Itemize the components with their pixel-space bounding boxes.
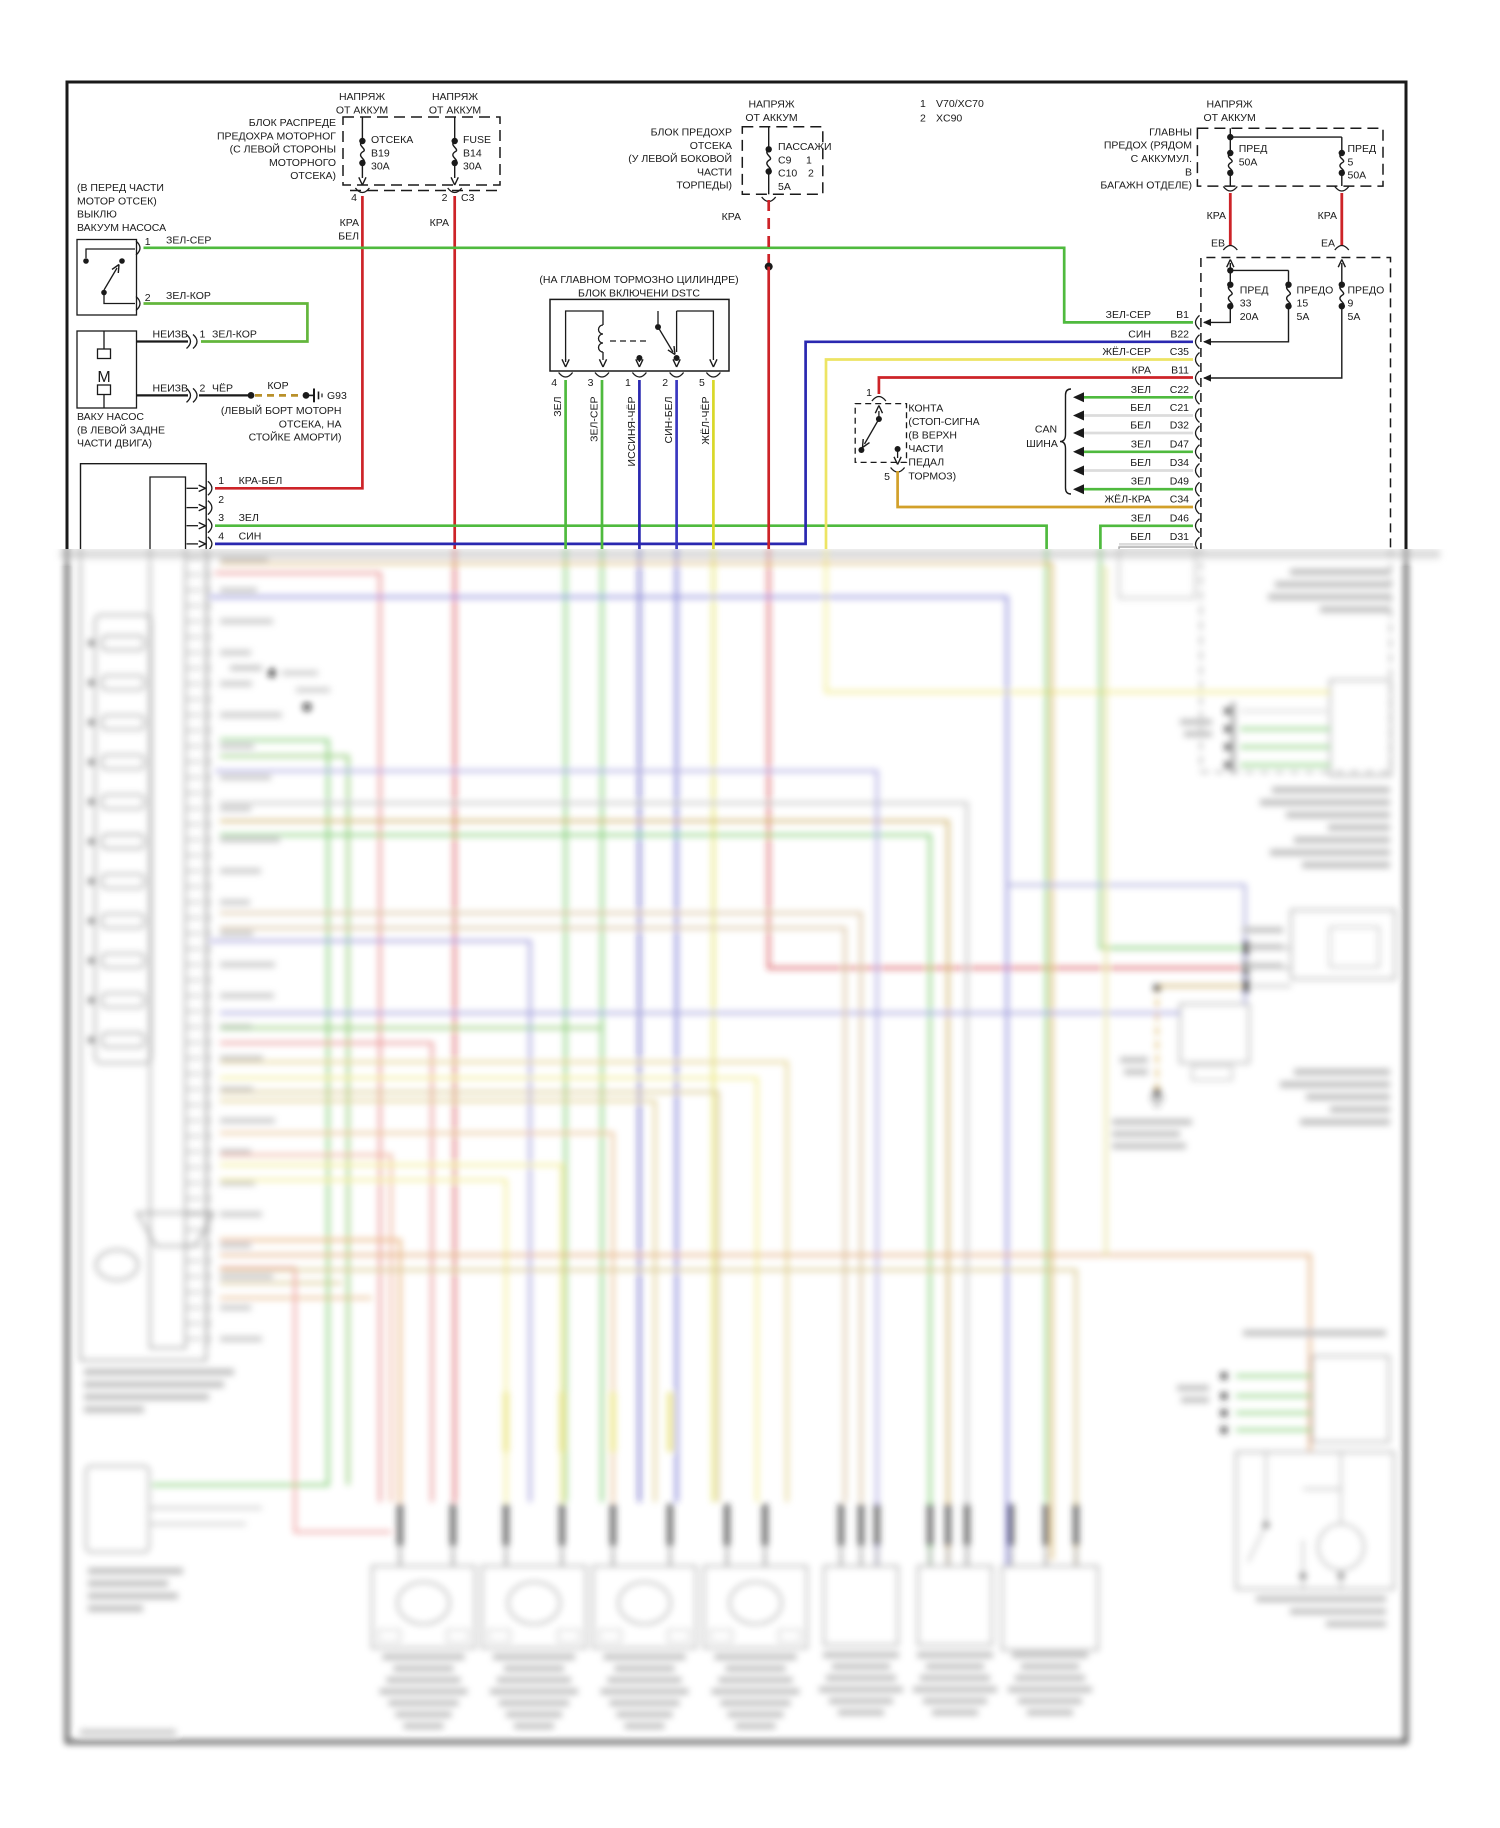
svg-text:ЧАСТИ: ЧАСТИ: [908, 443, 943, 455]
svg-text:БЕЛ: БЕЛ: [338, 230, 359, 242]
svg-text:ОТ АККУМ: ОТ АККУМ: [429, 104, 481, 116]
svg-text:ТОРМОЗ): ТОРМОЗ): [908, 470, 956, 482]
svg-text:CAN: CAN: [1035, 424, 1057, 436]
svg-text:КРА: КРА: [722, 211, 741, 223]
svg-text:В: В: [1185, 166, 1192, 178]
svg-text:ЧАСТИ ДВИГА): ЧАСТИ ДВИГА): [77, 438, 152, 450]
svg-text:C10: C10: [778, 168, 797, 180]
svg-text:ТОРПЕДЫ): ТОРПЕДЫ): [676, 180, 732, 192]
svg-text:ЗЕЛ: ЗЕЛ: [239, 512, 259, 524]
svg-text:30A: 30A: [371, 161, 390, 173]
svg-text:ИССИНЯ-ЧЁР: ИССИНЯ-ЧЁР: [626, 397, 638, 467]
svg-text:ЗЕЛ: ЗЕЛ: [1131, 438, 1151, 450]
svg-text:(В ПЕРЕД ЧАСТИ: (В ПЕРЕД ЧАСТИ: [77, 182, 164, 194]
svg-text:СТОЙКЕ АМОРТИ): СТОЙКЕ АМОРТИ): [249, 431, 342, 444]
svg-text:(С ЛЕВОЙ СТОРОНЫ: (С ЛЕВОЙ СТОРОНЫ: [230, 143, 336, 156]
svg-text:XC90: XC90: [936, 113, 962, 125]
svg-text:50A: 50A: [1348, 170, 1367, 182]
svg-text:EB: EB: [1211, 238, 1225, 250]
svg-text:2: 2: [920, 113, 926, 125]
svg-text:(В ЛЕВОЙ ЗАДНЕ: (В ЛЕВОЙ ЗАДНЕ: [77, 423, 165, 436]
svg-text:1: 1: [920, 98, 926, 110]
svg-text:ШИНА: ШИНА: [1026, 438, 1058, 450]
svg-text:ЗЕЛ-СЕР: ЗЕЛ-СЕР: [1106, 309, 1151, 321]
svg-text:2: 2: [200, 383, 206, 395]
svg-text:33: 33: [1240, 298, 1252, 310]
svg-text:5A: 5A: [1348, 311, 1361, 323]
svg-text:ЗЕЛ: ЗЕЛ: [1131, 512, 1151, 524]
svg-text:ПРЕДОХ (РЯДОМ: ПРЕДОХ (РЯДОМ: [1104, 140, 1192, 152]
svg-text:ЧЁР: ЧЁР: [212, 383, 233, 395]
svg-text:C22: C22: [1170, 384, 1189, 396]
svg-text:C9: C9: [778, 154, 792, 166]
svg-text:D49: D49: [1170, 476, 1189, 488]
svg-text:ПРЕДО: ПРЕДО: [1348, 284, 1385, 296]
svg-text:БАГАЖН ОТДЕЛЕ): БАГАЖН ОТДЕЛЕ): [1100, 180, 1192, 192]
svg-text:50A: 50A: [1239, 156, 1258, 168]
svg-text:ПРЕД: ПРЕД: [1239, 143, 1268, 155]
svg-text:(СТОП-СИГНА: (СТОП-СИГНА: [908, 416, 979, 428]
svg-text:ЗЕЛ-СЕР: ЗЕЛ-СЕР: [589, 397, 601, 442]
svg-text:D32: D32: [1170, 420, 1189, 432]
svg-text:EA: EA: [1321, 238, 1335, 250]
svg-text:4: 4: [218, 530, 224, 542]
svg-text:КРА: КРА: [1132, 365, 1151, 377]
svg-text:М: М: [97, 369, 110, 386]
svg-text:БЕЛ: БЕЛ: [1130, 531, 1151, 543]
svg-text:ПАССАЖИ: ПАССАЖИ: [778, 141, 832, 153]
svg-text:КОР: КОР: [267, 380, 288, 392]
svg-text:ПЕДАЛ: ПЕДАЛ: [908, 457, 944, 469]
svg-text:5: 5: [884, 471, 890, 483]
svg-text:ОТ АККУМ: ОТ АККУМ: [745, 112, 797, 124]
svg-text:C3: C3: [461, 192, 475, 204]
svg-text:НАПРЯЖ: НАПРЯЖ: [432, 91, 478, 103]
svg-text:30A: 30A: [463, 161, 482, 173]
svg-text:НЕИЗВ: НЕИЗВ: [153, 383, 188, 395]
svg-text:V70/XC70: V70/XC70: [936, 98, 984, 110]
svg-text:ЖЁЛ-КРА: ЖЁЛ-КРА: [1104, 494, 1151, 506]
svg-text:СИН: СИН: [1128, 328, 1151, 340]
svg-text:B22: B22: [1170, 328, 1189, 340]
svg-text:4: 4: [551, 377, 557, 389]
svg-text:D47: D47: [1170, 438, 1189, 450]
svg-text:D31: D31: [1170, 531, 1189, 543]
svg-text:C34: C34: [1170, 494, 1189, 506]
svg-text:ЧАСТИ: ЧАСТИ: [697, 166, 732, 178]
svg-text:3: 3: [218, 512, 224, 524]
svg-text:1: 1: [625, 377, 631, 389]
svg-text:МОТОР ОТСЕК): МОТОР ОТСЕК): [77, 195, 157, 207]
svg-text:(В ВЕРХН: (В ВЕРХН: [908, 430, 957, 442]
svg-text:5A: 5A: [778, 181, 791, 193]
svg-text:КРА: КРА: [430, 217, 449, 229]
svg-text:КРА: КРА: [340, 217, 359, 229]
svg-text:ОТ АККУМ: ОТ АККУМ: [336, 104, 388, 116]
svg-text:ОТСЕКА: ОТСЕКА: [690, 140, 732, 152]
svg-text:C21: C21: [1170, 402, 1189, 414]
svg-text:2: 2: [662, 377, 668, 389]
svg-text:D34: D34: [1170, 457, 1189, 469]
svg-text:(ЛЕВЫЙ БОРТ МОТОРН: (ЛЕВЫЙ БОРТ МОТОРН: [221, 404, 342, 417]
svg-text:9: 9: [1348, 298, 1354, 310]
svg-text:15: 15: [1297, 298, 1309, 310]
svg-text:20A: 20A: [1240, 311, 1259, 323]
svg-text:ОТСЕКА, НА: ОТСЕКА, НА: [279, 418, 342, 430]
svg-text:НЕИЗВ: НЕИЗВ: [153, 329, 188, 341]
svg-text:ЖЁЛ-СЕР: ЖЁЛ-СЕР: [1102, 346, 1151, 358]
svg-text:C35: C35: [1170, 346, 1189, 358]
svg-text:КРА: КРА: [1318, 210, 1337, 222]
svg-text:КРА-БЕЛ: КРА-БЕЛ: [239, 475, 283, 487]
svg-text:FUSE: FUSE: [463, 134, 491, 146]
svg-text:БЕЛ: БЕЛ: [1130, 402, 1151, 414]
svg-text:ОТ АККУМ: ОТ АККУМ: [1203, 112, 1255, 124]
svg-text:2: 2: [442, 192, 448, 204]
svg-text:B11: B11: [1171, 365, 1189, 377]
svg-text:ЗЕЛ: ЗЕЛ: [1131, 384, 1151, 396]
svg-text:БЛОК РАСПРЕДЕ: БЛОК РАСПРЕДЕ: [249, 117, 336, 129]
svg-text:СИН-БЕЛ: СИН-БЕЛ: [663, 396, 675, 443]
svg-text:ЗЕЛ-КОР: ЗЕЛ-КОР: [166, 290, 211, 302]
svg-text:D46: D46: [1170, 512, 1189, 524]
svg-text:ПРЕДО: ПРЕДО: [1297, 284, 1334, 296]
svg-text:1: 1: [806, 154, 812, 166]
svg-text:ВАКУ НАСОС: ВАКУ НАСОС: [77, 411, 144, 423]
svg-text:(НА ГЛАВНОМ ТОРМОЗНО ЦИЛИНДРЕ): (НА ГЛАВНОМ ТОРМОЗНО ЦИЛИНДРЕ): [539, 274, 738, 286]
svg-text:КРА: КРА: [1207, 210, 1226, 222]
svg-text:БЕЛ: БЕЛ: [1130, 420, 1151, 432]
svg-text:НАПРЯЖ: НАПРЯЖ: [339, 91, 385, 103]
svg-text:ВЫКЛЮ: ВЫКЛЮ: [77, 209, 117, 221]
svg-text:ВАКУУМ НАСОСА: ВАКУУМ НАСОСА: [77, 222, 166, 234]
svg-text:B19: B19: [371, 147, 390, 159]
svg-text:5: 5: [1348, 156, 1354, 168]
svg-text:ГЛАВНЫ: ГЛАВНЫ: [1149, 126, 1192, 138]
svg-text:БЕЛ: БЕЛ: [1130, 457, 1151, 469]
svg-text:КОНТА: КОНТА: [908, 402, 943, 414]
svg-text:СИН: СИН: [239, 530, 262, 542]
svg-text:ОТСЕКА): ОТСЕКА): [290, 170, 336, 182]
svg-text:БЛОК ПРЕДОХР: БЛОК ПРЕДОХР: [651, 127, 732, 139]
svg-text:2: 2: [808, 168, 814, 180]
svg-text:С АККУМУЛ.: С АККУМУЛ.: [1131, 153, 1192, 165]
svg-text:G93: G93: [327, 390, 347, 402]
svg-text:B14: B14: [463, 147, 482, 159]
svg-text:4: 4: [351, 192, 357, 204]
svg-text:ЗЕЛ: ЗЕЛ: [1131, 476, 1151, 488]
svg-text:ЗЕЛ-КОР: ЗЕЛ-КОР: [212, 329, 257, 341]
svg-text:B1: B1: [1176, 309, 1189, 321]
svg-text:ЗЕЛ: ЗЕЛ: [552, 396, 564, 416]
svg-text:ЖЁЛ-ЧЁР: ЖЁЛ-ЧЁР: [700, 397, 712, 445]
svg-text:1: 1: [218, 475, 224, 487]
svg-text:НАПРЯЖ: НАПРЯЖ: [1207, 99, 1253, 111]
svg-text:(У ЛЕВОЙ БОКОВОЙ: (У ЛЕВОЙ БОКОВОЙ: [628, 152, 732, 165]
svg-text:1: 1: [866, 387, 872, 399]
svg-text:ЗЕЛ-СЕР: ЗЕЛ-СЕР: [166, 235, 211, 247]
svg-text:МОТОРНОГО: МОТОРНОГО: [269, 157, 336, 169]
svg-text:ПРЕД: ПРЕД: [1240, 284, 1269, 296]
svg-text:1: 1: [145, 236, 151, 248]
svg-text:БЛОК ВКЛЮЧЕНИ DSTC: БЛОК ВКЛЮЧЕНИ DSTC: [578, 287, 700, 299]
svg-text:5: 5: [699, 377, 705, 389]
svg-text:ПРЕДОХРА МОТОРНОГ: ПРЕДОХРА МОТОРНОГ: [217, 130, 336, 142]
svg-text:3: 3: [588, 377, 594, 389]
svg-text:2: 2: [218, 494, 224, 506]
svg-text:ОТСЕКА: ОТСЕКА: [371, 134, 413, 146]
svg-text:ПРЕД: ПРЕД: [1348, 143, 1377, 155]
svg-text:1: 1: [200, 329, 206, 341]
svg-text:5A: 5A: [1297, 311, 1310, 323]
svg-text:НАПРЯЖ: НАПРЯЖ: [748, 99, 794, 111]
